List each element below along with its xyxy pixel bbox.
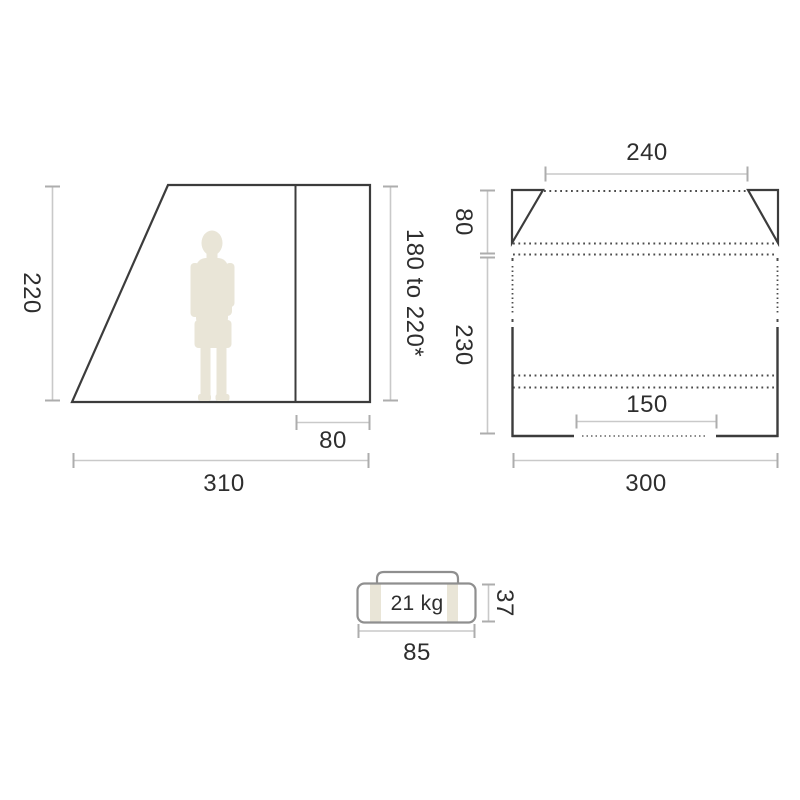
side-peak-height-label: 180 to 220* [401, 218, 427, 368]
dim-side-peak-height [383, 187, 398, 401]
dim-top-main-depth [480, 257, 495, 434]
top-front-depth-label: 80 [450, 192, 476, 252]
dim-side-height [45, 187, 60, 401]
top-rear-opening-label: 150 [607, 392, 687, 418]
top-total-width-label: 300 [606, 471, 686, 497]
side-rear-section-label: 80 [308, 428, 358, 454]
pack-height-label: 37 [492, 581, 516, 625]
top-front-opening-label: 240 [607, 140, 687, 166]
dim-top-front-depth [480, 191, 495, 254]
top-main-depth-label: 230 [450, 305, 476, 385]
pack-length-label: 85 [387, 640, 447, 666]
dim-top-total-width [514, 453, 778, 468]
dim-pack-length [359, 624, 475, 638]
dim-top-front-opening [546, 167, 748, 182]
side-total-width-label: 310 [184, 471, 264, 497]
side-height-label: 220 [18, 270, 44, 316]
bag-handle [377, 572, 458, 584]
dim-side-total-width [74, 453, 369, 468]
right-corner-flap [748, 190, 778, 243]
dimension-diagram-page: 220 180 to 220* 80 310 240 80 230 150 30… [0, 0, 800, 800]
left-corner-flap [512, 190, 543, 243]
top-view-drawing [480, 167, 779, 469]
person-silhouette-icon [191, 231, 235, 402]
pack-weight-label: 21 kg [376, 590, 458, 616]
side-view-drawing [45, 185, 398, 468]
